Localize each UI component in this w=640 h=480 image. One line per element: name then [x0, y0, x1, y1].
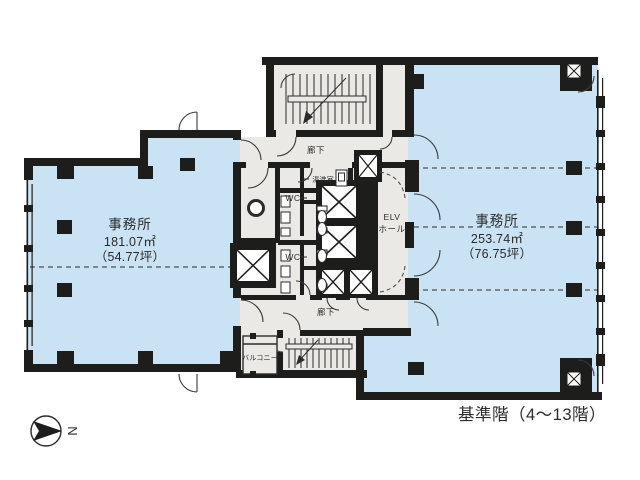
plan-caption: 基準階（4〜13階）: [458, 405, 606, 424]
compass-north-letter: N: [65, 426, 80, 435]
floor-plan-drawing: 事務所 181.07㎡ （54.77坪） 事務所 253.74㎡ （76.75坪…: [0, 0, 640, 480]
wc-lower-label: WC: [285, 252, 300, 262]
stair-door-gap: [283, 329, 300, 337]
balcony-label: バルコニー: [242, 354, 278, 362]
office-left-area: 181.07㎡: [104, 235, 156, 249]
office-left-name: 事務所: [108, 217, 152, 232]
pipe-symbol: [249, 201, 264, 216]
kitchenette-label: 湯沸室: [312, 175, 334, 184]
office-left-tsubo: （54.77坪）: [95, 250, 165, 264]
office-right-area: 253.74㎡: [471, 232, 523, 246]
elv-hall-label-1: ELV: [384, 212, 401, 222]
elv-hall-label-2: ホール: [378, 224, 405, 234]
wc-upper-label: WC: [285, 193, 300, 203]
compass: N: [31, 416, 80, 446]
corridor-top-label: 廊下: [307, 145, 325, 155]
office-right-name: 事務所: [475, 213, 519, 228]
window-wall-right: [596, 70, 605, 392]
floor-plan-page: 事務所 181.07㎡ （54.77坪） 事務所 253.74㎡ （76.75坪…: [0, 0, 640, 480]
office-right-tsubo: （76.75坪）: [462, 247, 532, 261]
corridor-bottom-label: 廊下: [317, 307, 335, 317]
